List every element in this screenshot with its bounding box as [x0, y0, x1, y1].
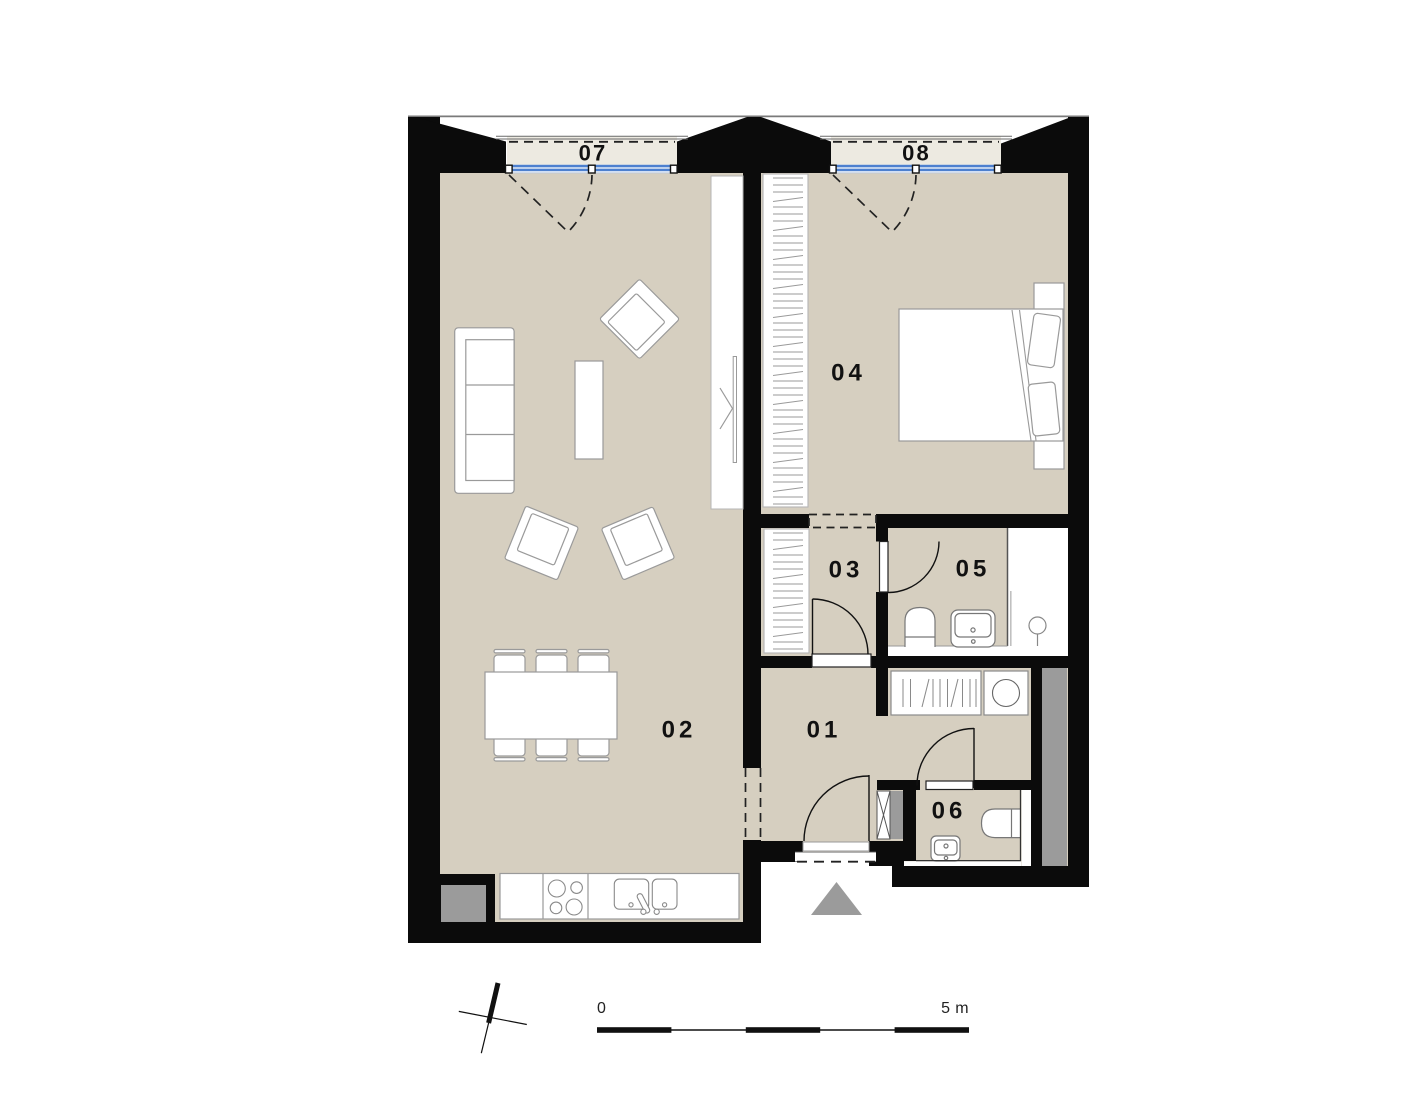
svg-text:02: 02 — [662, 717, 697, 744]
svg-text:05: 05 — [956, 556, 991, 583]
svg-text:04: 04 — [831, 360, 866, 387]
svg-text:08: 08 — [902, 141, 931, 166]
svg-text:0: 0 — [597, 1000, 606, 1017]
svg-text:03: 03 — [829, 557, 864, 584]
svg-text:5 m: 5 m — [941, 1000, 969, 1017]
svg-text:01: 01 — [807, 717, 842, 744]
svg-text:07: 07 — [579, 141, 608, 166]
svg-text:06: 06 — [932, 798, 967, 825]
